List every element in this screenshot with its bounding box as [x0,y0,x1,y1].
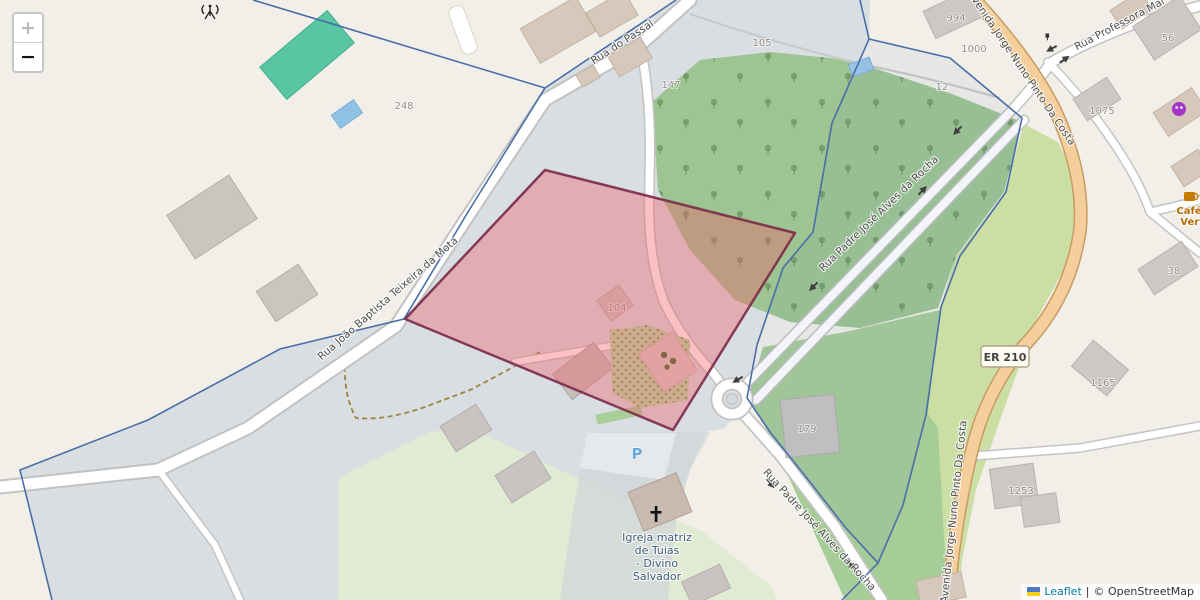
house-number: 105 [752,38,771,49]
church-label: - Divino [636,557,679,570]
map-canvas[interactable]: Rua do Passal Rua João Baptista Teixeira… [0,0,1200,600]
house-number: 1000 [961,44,986,55]
church-label: de Tuias [635,544,680,557]
route-badge: ER 210 [981,346,1029,367]
zoom-in-button[interactable]: + [14,14,42,43]
map-viewport[interactable]: Rua do Passal Rua João Baptista Teixeira… [0,0,1200,600]
church-label: Salvador [633,570,682,583]
parking-symbol: P [632,445,643,463]
zoom-out-button[interactable]: − [14,43,42,71]
house-number: 1253 [1008,486,1033,497]
cafe-label: Verv [1180,217,1200,228]
house-number: 38 [1168,266,1181,277]
house-number: 1075 [1089,106,1114,117]
house-number: 12 [936,82,949,93]
roundabout [717,384,747,414]
attribution-bar: Leaflet | © OpenStreetMap [1021,584,1200,600]
house-number: 994 [946,13,965,24]
house-number: 56 [1162,33,1175,44]
house-number: 147 [661,80,680,91]
church-label: Igreja matriz [622,531,692,544]
cafe-label: Café [1176,205,1200,217]
attribution-separator: | [1086,585,1090,598]
osm-attribution: © OpenStreetMap [1093,585,1194,598]
house-number: 248 [394,101,413,112]
purple-poi-icon [1172,102,1186,116]
zoom-control[interactable]: + − [12,12,44,73]
house-number: 179 [797,424,816,435]
building [1020,493,1060,528]
house-number: 1165 [1090,378,1115,389]
route-badge-text: ER 210 [984,351,1027,364]
leaflet-link[interactable]: Leaflet [1044,585,1081,598]
ukraine-flag-icon [1027,587,1040,596]
